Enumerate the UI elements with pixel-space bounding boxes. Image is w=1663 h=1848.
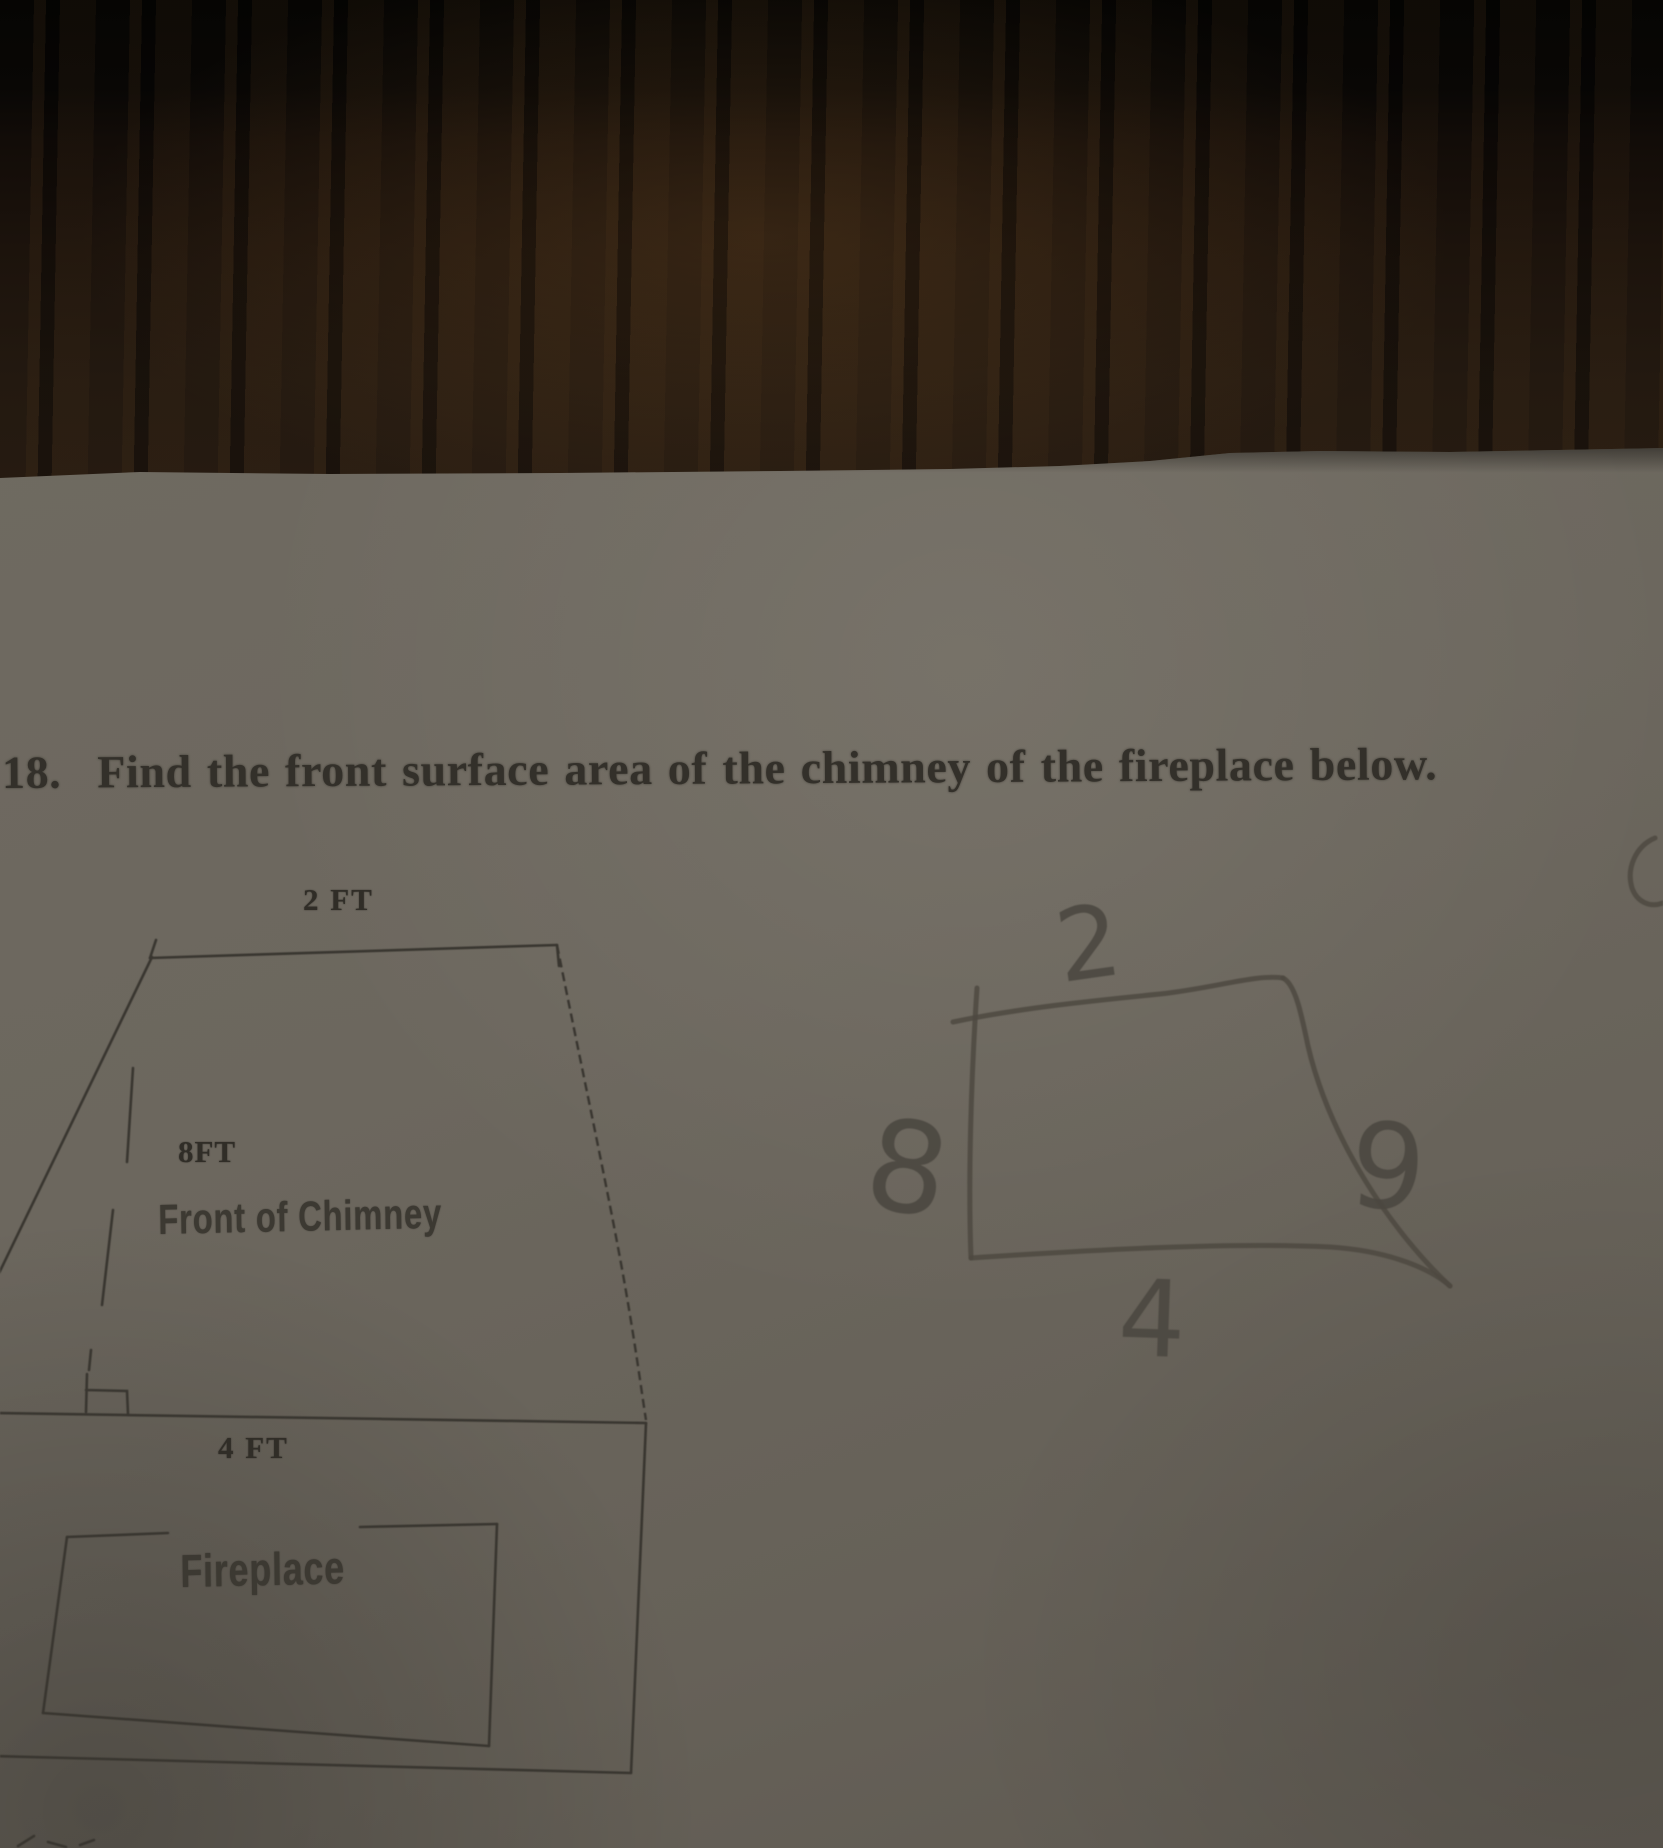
sketch-bottom-value: 4 [1116,1257,1188,1382]
sketch-top-value: 2 [1049,881,1128,1006]
edge-partial-pencil-mark [1630,838,1663,905]
sketch-bottom-edge [971,1245,1450,1286]
sketch-right-value: 9 [1344,1095,1431,1239]
sketch-left-value: 8 [856,1090,958,1248]
handwritten-sketch: 2 8 9 4 [0,0,1663,1848]
worksheet-photo: 18.Find the front surface area of the ch… [0,0,1663,1848]
sketch-left-edge [970,988,977,1258]
